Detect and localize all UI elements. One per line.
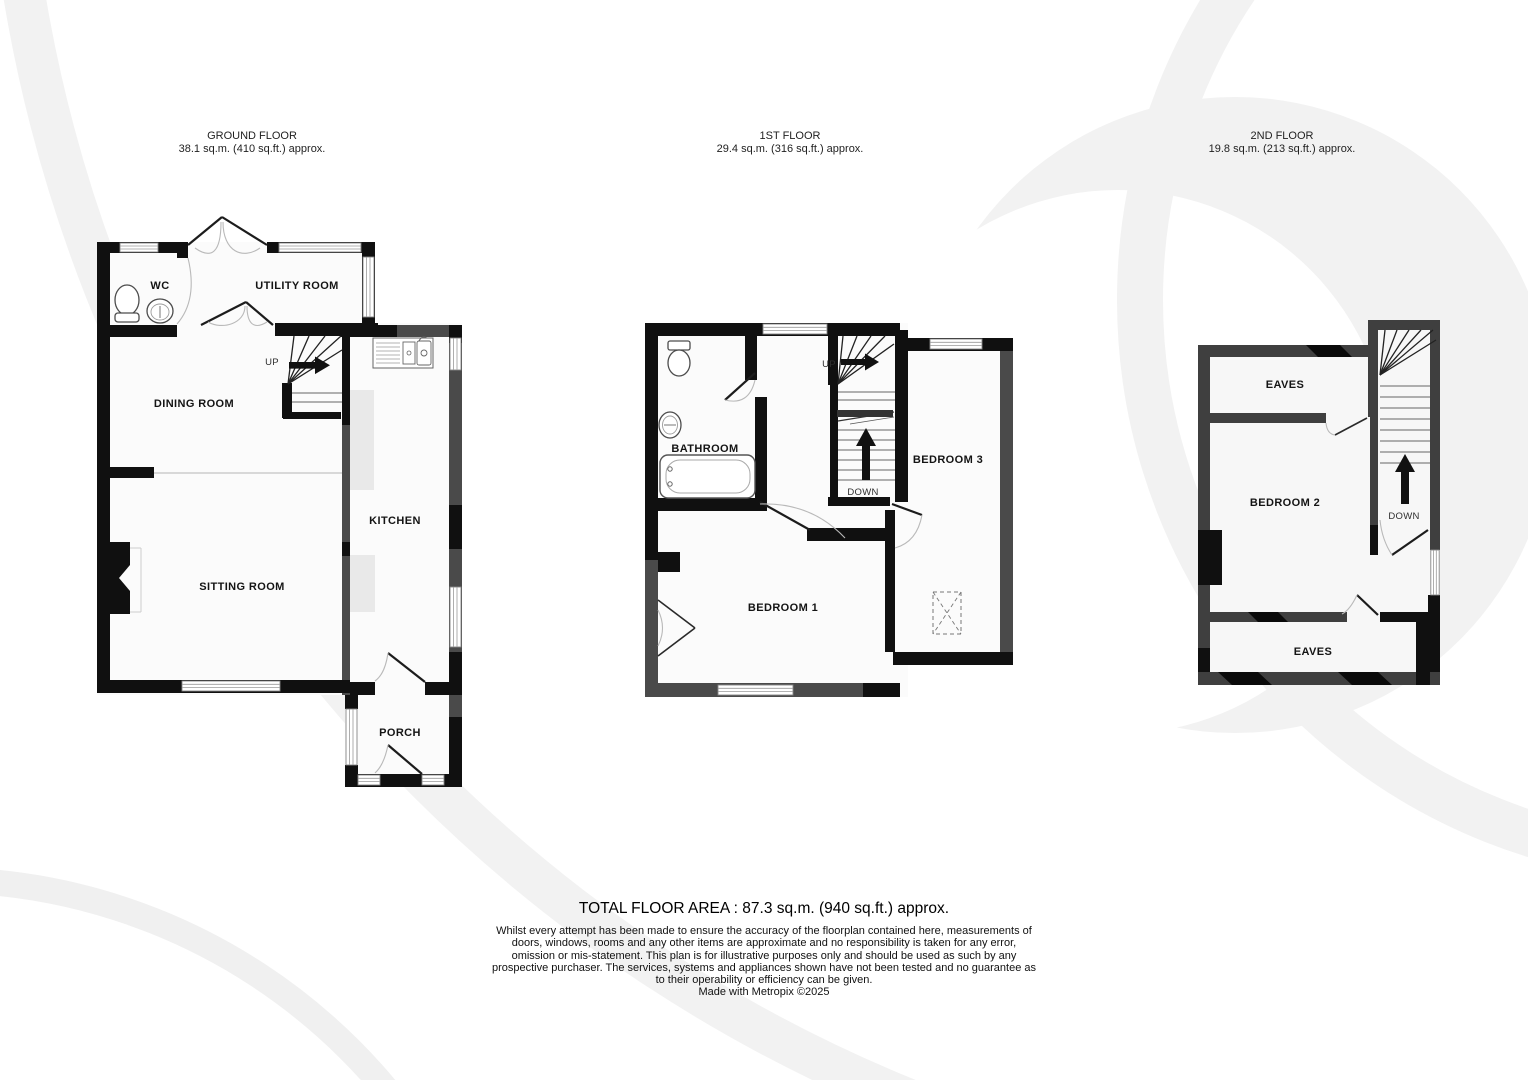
first-floor-area: 29.4 sq.m. (316 sq.ft.) approx. xyxy=(640,143,940,156)
room-label-eaves-top: EAVES xyxy=(1266,379,1304,391)
stair-label-up-ff: UP xyxy=(822,359,836,370)
room-label-dining: DINING ROOM xyxy=(154,398,234,410)
ff-bath-icon xyxy=(660,455,755,498)
second-floor-plan: EAVES BEDROOM 2 EAVES DOWN xyxy=(1188,318,1442,690)
room-label-porch: PORCH xyxy=(379,727,421,739)
room-label-sitting: SITTING ROOM xyxy=(199,581,284,593)
disclaimer-text: Whilst every attempt has been made to en… xyxy=(492,925,1037,986)
room-label-utility: UTILITY ROOM xyxy=(255,280,338,292)
stair-label-down-ff: DOWN xyxy=(847,487,878,498)
gf-sink-icon xyxy=(373,337,433,368)
stair-label-up-gf: UP xyxy=(265,357,279,368)
first-floor-header: 1ST FLOOR 29.4 sq.m. (316 sq.ft.) approx… xyxy=(640,130,940,156)
ground-floor-header: GROUND FLOOR 38.1 sq.m. (410 sq.ft.) app… xyxy=(97,130,407,156)
metropix-credit: Made with Metropix ©2025 xyxy=(0,986,1528,998)
second-floor-title: 2ND FLOOR xyxy=(1132,130,1432,143)
sf-down-arrow-shaft xyxy=(1401,470,1409,504)
first-floor-title: 1ST FLOOR xyxy=(640,130,940,143)
stair-label-down-sf: DOWN xyxy=(1388,511,1419,522)
room-label-wc: WC xyxy=(150,280,169,292)
room-label-bedroom1: BEDROOM 1 xyxy=(748,602,818,614)
room-label-bathroom: BATHROOM xyxy=(671,443,738,455)
room-label-eaves-bottom: EAVES xyxy=(1294,646,1332,658)
sf-windows xyxy=(1431,550,1439,595)
ground-floor-plan: WC UTILITY ROOM DINING ROOM KITCHEN SITT… xyxy=(97,212,462,790)
room-label-bedroom2: BEDROOM 2 xyxy=(1250,497,1320,509)
ff-basin-icon xyxy=(659,412,681,438)
ground-floor-title: GROUND FLOOR xyxy=(97,130,407,143)
gf-basin-icon xyxy=(147,299,173,323)
ff-toilet-icon xyxy=(668,341,690,376)
room-label-kitchen: KITCHEN xyxy=(369,515,421,527)
second-floor-area: 19.8 sq.m. (213 sq.ft.) approx. xyxy=(1132,143,1432,156)
room-label-bedroom3: BEDROOM 3 xyxy=(913,454,983,466)
second-floor-header: 2ND FLOOR 19.8 sq.m. (213 sq.ft.) approx… xyxy=(1132,130,1432,156)
footer: TOTAL FLOOR AREA : 87.3 sq.m. (940 sq.ft… xyxy=(0,900,1528,999)
gf-toilet-icon xyxy=(115,285,139,322)
first-floor-plan: BATHROOM BEDROOM 3 BEDROOM 1 UP DOWN xyxy=(645,318,1015,703)
ff-down-arrow-shaft xyxy=(862,444,870,480)
total-floor-area: TOTAL FLOOR AREA : 87.3 sq.m. (940 sq.ft… xyxy=(0,900,1528,918)
ground-floor-area: 38.1 sq.m. (410 sq.ft.) approx. xyxy=(97,143,407,156)
